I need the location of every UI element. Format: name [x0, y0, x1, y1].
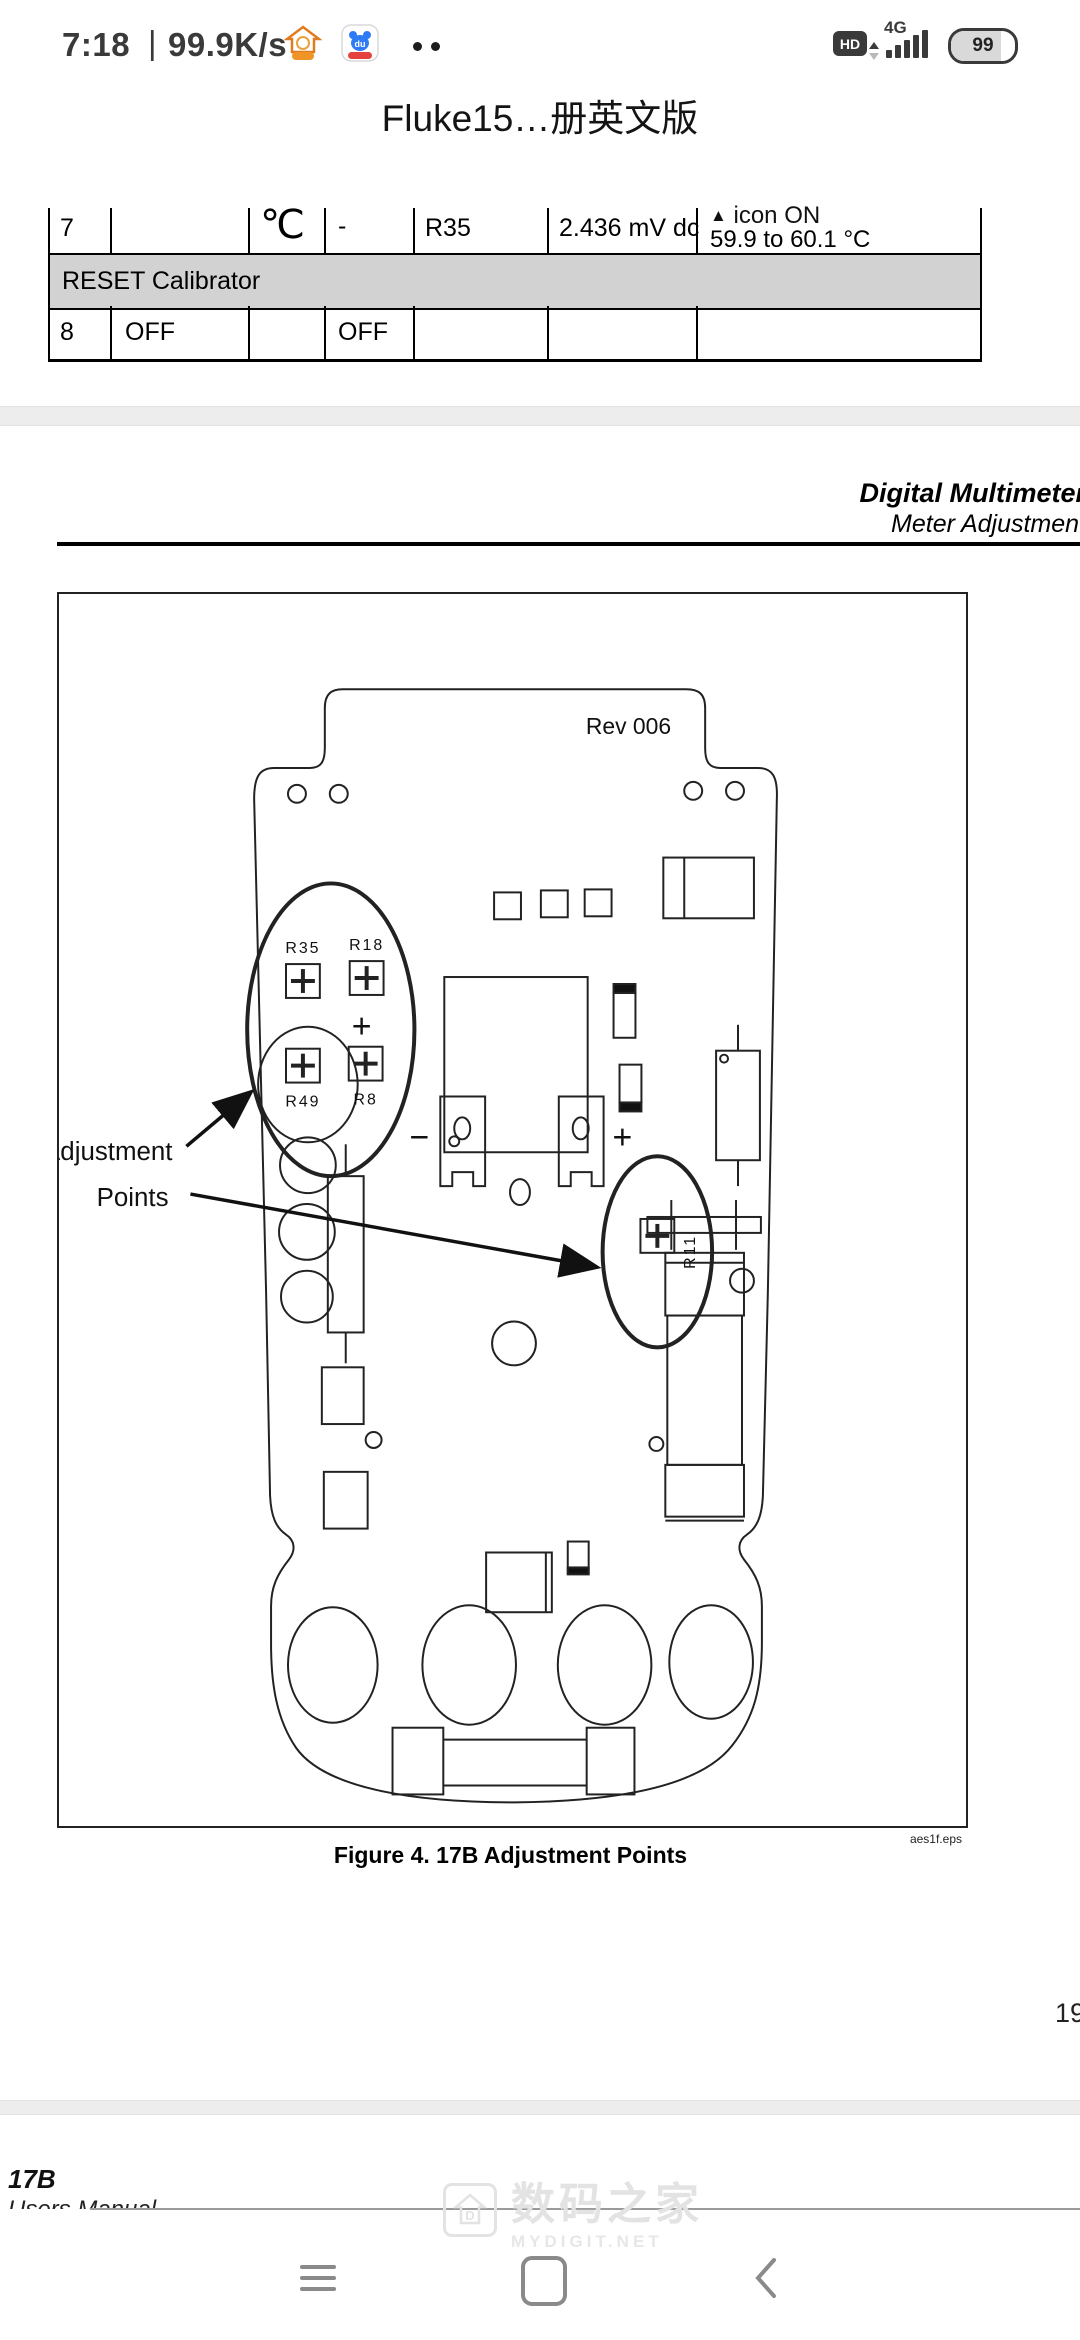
mydigit-app-icon [284, 24, 322, 67]
notification-dot [431, 42, 440, 51]
r35-label: R35 [285, 940, 320, 957]
battery-indicator: 99 [948, 28, 1018, 64]
page-number: 19 [1055, 1998, 1080, 2029]
r49-label: R49 [285, 1093, 320, 1110]
clock: 7:18 [62, 26, 130, 64]
pdf-scroll-view[interactable]: Fluke15…册英文版 7 ℃ - R35 2.436 mV dc ▲ ico… [0, 70, 1080, 2250]
baidu-tieba-app-icon: du [341, 24, 379, 67]
hd-label: HD [840, 36, 860, 52]
watermark-logo: D [443, 2183, 497, 2237]
r18-label: R18 [349, 937, 384, 954]
trimmer-r18 [350, 961, 384, 995]
status-separator: | [148, 24, 157, 62]
pcb-diagram: Rev 006 R35 R18 R49 R8 R11 Adjustment Po… [59, 594, 966, 1826]
svg-text:du: du [355, 39, 366, 49]
r8-label: R8 [353, 1091, 377, 1108]
watermark-en: MYDIGIT.NET [511, 2232, 703, 2252]
back-button[interactable] [750, 2256, 786, 2305]
table-cell-range: OFF [338, 318, 388, 347]
running-header-title: Digital Multimeter [859, 478, 1080, 509]
adjustment-circle-main [247, 883, 414, 1176]
reset-row-label: RESET Calibrator [62, 267, 260, 296]
data-arrows-icon [868, 42, 880, 65]
figure-caption: Figure 4. 17B Adjustment Points [57, 1842, 964, 1869]
battery-clip-neg [440, 1097, 485, 1187]
header-rule [57, 542, 1080, 546]
hd-voice-icon: HD [833, 31, 867, 56]
next-page-section: 17B [8, 2164, 56, 2195]
notification-dot [413, 42, 422, 51]
signal-strength-icon [886, 30, 928, 58]
trimmer-r49 [286, 1049, 320, 1083]
table-cell-degc: ℃ [260, 202, 305, 248]
cap-plus-sign: + [352, 1008, 372, 1046]
table-reset-row: RESET Calibrator [48, 253, 982, 310]
watermark-cn: 数码之家 [511, 2168, 703, 2232]
rev-label: Rev 006 [586, 713, 671, 739]
trimmer-r11 [640, 1219, 674, 1253]
home-button[interactable] [521, 2256, 567, 2306]
delta-icon: ▲ [710, 206, 727, 225]
menu-button[interactable] [300, 2258, 336, 2298]
table-cell-dash: - [338, 212, 346, 241]
clip-minus-sign: − [409, 1118, 429, 1156]
page-separator [0, 406, 1080, 426]
navigation-bar [0, 2250, 1080, 2340]
clip-plus-sign: + [613, 1118, 633, 1156]
table-cell-adjust: R35 [425, 214, 471, 243]
table-cell-step: 8 [60, 318, 74, 347]
arrow-to-main-circle [186, 1094, 249, 1147]
battery-clip-pos [559, 1097, 604, 1187]
svg-text:D: D [465, 2208, 474, 2223]
table-cell-result-line2: 59.9 to 60.1 °C [710, 226, 870, 254]
network-speed: 99.9K/s [168, 26, 287, 64]
figure-adjustment-points: Rev 006 R35 R18 R49 R8 R11 Adjustment Po… [57, 592, 968, 1828]
adjustment-points-label-1: Adjustment [59, 1138, 172, 1166]
table-cell-step: 7 [60, 214, 74, 243]
table-cell-function: OFF [125, 318, 175, 347]
document-title: Fluke15…册英文版 [0, 88, 1080, 142]
r11-label: R11 [682, 1235, 699, 1269]
watermark: D 数码之家 MYDIGIT.NET [443, 2168, 703, 2252]
table-cell-value: 2.436 mV dc [559, 214, 699, 243]
calibration-table: 7 ℃ - R35 2.436 mV dc ▲ icon ON 59.9 to … [48, 208, 982, 362]
screenshot-root: { "status_bar": { "time": "7:18", "separ… [0, 0, 1080, 2340]
battery-percent: 99 [951, 31, 1015, 61]
ic-outline [444, 977, 587, 1152]
adjustment-points-label-2: Points [97, 1184, 169, 1212]
running-header-subtitle: Meter Adjustment [891, 510, 1080, 539]
status-bar: 7:18 | 99.9K/s du HD 4G [0, 0, 1080, 70]
trimmer-r35 [286, 964, 320, 998]
page-separator [0, 2100, 1080, 2115]
arrow-to-r11-circle [190, 1194, 594, 1267]
